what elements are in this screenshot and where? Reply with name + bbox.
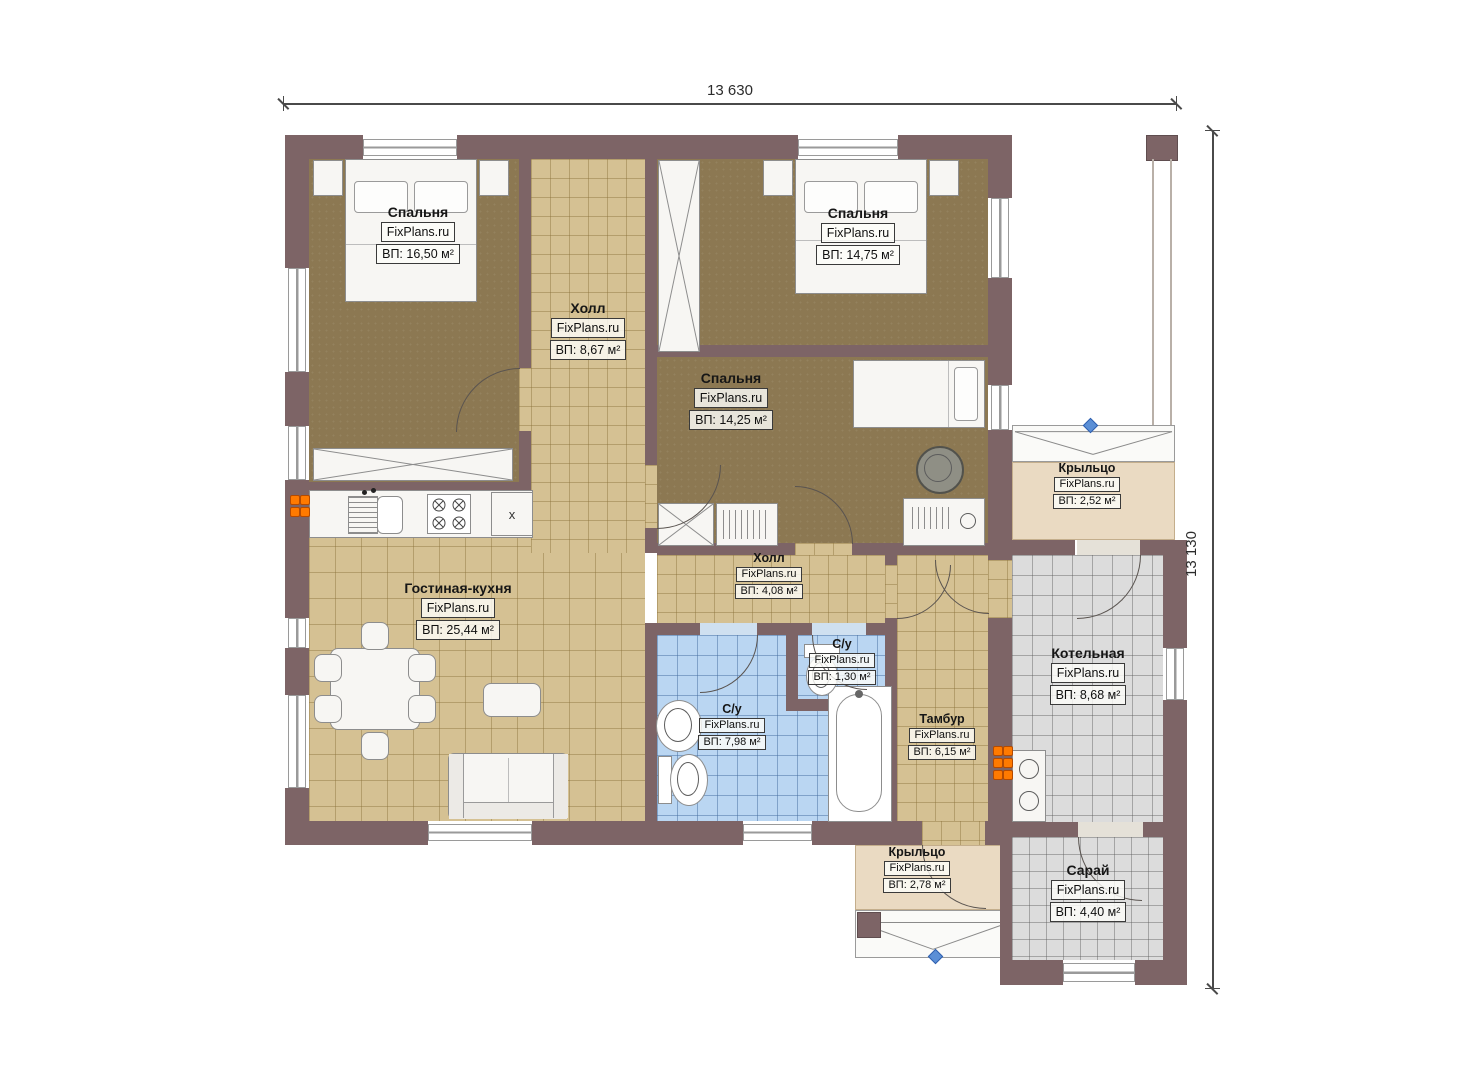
room-label-bedroom-3: Спальня FixPlans.ru ВП: 14,25 м²: [668, 370, 794, 430]
toilet: [670, 754, 708, 806]
door-threshold: [519, 368, 531, 431]
sofa: [448, 753, 568, 819]
door-threshold: [645, 465, 657, 528]
x-cross-icon: [659, 161, 699, 351]
room-area: ВП: 6,15 м²: [908, 745, 975, 760]
window: [363, 139, 457, 156]
chair: [361, 622, 389, 650]
wardrobe: [313, 448, 513, 481]
room-label-hall-1: Холл FixPlans.ru ВП: 8,67 м²: [534, 300, 642, 360]
window: [798, 139, 898, 156]
room-name: Спальня: [701, 370, 761, 386]
door-threshold: [812, 623, 866, 635]
room-label-porch-1: Крыльцо FixPlans.ru ВП: 2,52 м²: [1028, 461, 1146, 509]
wall: [757, 623, 812, 635]
wall: [645, 159, 657, 465]
door-threshold: [700, 623, 757, 635]
dimension-height: 13 130: [1183, 517, 1201, 591]
door-threshold: [922, 821, 985, 845]
room-area: ВП: 8,68 м²: [1050, 685, 1127, 705]
bathtub: [828, 686, 892, 822]
window: [288, 695, 306, 788]
window: [1166, 648, 1184, 700]
coffee-table: [483, 683, 541, 717]
wall: [1143, 822, 1187, 837]
wall: [1163, 700, 1187, 985]
roof-overhang-line: [1170, 159, 1172, 425]
wall: [285, 135, 309, 268]
room-area: ВП: 16,50 м²: [376, 244, 460, 264]
room-area: ВП: 14,25 м²: [689, 410, 773, 430]
wall: [988, 618, 1012, 845]
watermark: FixPlans.ru: [1051, 880, 1126, 900]
dining-table: [330, 648, 420, 730]
boiler-unit: [1012, 750, 1046, 822]
radiator-icon: [290, 495, 308, 517]
wall: [657, 623, 700, 635]
pot-icon: [916, 446, 964, 494]
window: [288, 618, 306, 648]
room-name: Крыльцо: [889, 845, 946, 859]
room-name: Спальня: [828, 205, 888, 221]
wall: [285, 821, 428, 845]
dimension-line-right: [1212, 130, 1214, 988]
kitchen-appliance: x: [491, 492, 533, 536]
faucet-dot: [371, 488, 376, 493]
boiler-dial-icon: [1019, 791, 1039, 811]
nightstand: [479, 160, 509, 196]
window: [288, 426, 306, 480]
room-label-boiler: Котельная FixPlans.ru ВП: 8,68 м²: [1028, 645, 1148, 705]
porch-pillar: [857, 912, 881, 938]
room-label-shed: Сарай FixPlans.ru ВП: 4,40 м²: [1030, 862, 1146, 922]
chair: [314, 654, 342, 682]
radiator-unit: [903, 498, 985, 546]
wall: [786, 623, 798, 711]
wardrobe: [658, 160, 700, 352]
room-name: С/у: [722, 702, 741, 716]
room-label-wc-2: С/у FixPlans.ru ВП: 7,98 м²: [682, 702, 782, 750]
watermark: FixPlans.ru: [809, 653, 874, 668]
floor-plan: x Спальня FixPlan: [0, 0, 1474, 1080]
dresser: [716, 503, 778, 546]
appliance-mark: x: [509, 507, 516, 522]
room-area: ВП: 4,40 м²: [1050, 902, 1127, 922]
kitchen-sink: [377, 496, 403, 534]
wall: [1000, 960, 1063, 985]
burners-icon: [428, 495, 470, 533]
blanket-line: [948, 361, 949, 427]
dimension-width: 13 630: [283, 82, 1177, 99]
door-threshold: [885, 565, 897, 618]
watermark: FixPlans.ru: [381, 222, 456, 242]
window: [991, 385, 1009, 430]
toilet-bowl: [677, 762, 699, 796]
room-label-bedroom-2: Спальня FixPlans.ru ВП: 14,75 м²: [795, 205, 921, 265]
dresser-detail: [723, 510, 771, 539]
room-area: ВП: 2,52 м²: [1053, 494, 1120, 509]
watermark: FixPlans.ru: [884, 861, 949, 876]
room-name: Сарай: [1066, 862, 1109, 878]
room-area: ВП: 14,75 м²: [816, 245, 900, 265]
wall: [519, 159, 531, 368]
room-name: С/у: [832, 637, 851, 651]
wall: [285, 372, 309, 426]
room-name: Холл: [570, 300, 605, 316]
watermark: FixPlans.ru: [421, 598, 496, 618]
door-threshold: [1077, 540, 1140, 555]
wall: [645, 528, 657, 553]
faucet-dot: [362, 490, 367, 495]
radiator-icon: [993, 746, 1011, 780]
room-label-wc-1: С/у FixPlans.ru ВП: 1,30 м²: [800, 637, 884, 685]
room-name: Спальня: [388, 204, 448, 220]
single-bed: [853, 360, 985, 428]
boiler-dial-icon: [1019, 759, 1039, 779]
room-label-bedroom-1: Спальня FixPlans.ru ВП: 16,50 м²: [355, 204, 481, 264]
wall: [657, 345, 988, 357]
wall: [457, 135, 798, 159]
window: [991, 198, 1009, 278]
wall: [1000, 822, 1078, 837]
chair: [314, 695, 342, 723]
porch-pillar: [1146, 135, 1178, 161]
room-label-hall-2: Холл FixPlans.ru ВП: 4,08 м²: [714, 551, 824, 599]
wall: [532, 821, 743, 845]
bathtub-faucet-icon: [855, 690, 863, 698]
wall: [285, 648, 309, 695]
room-name: Тамбур: [919, 712, 964, 726]
door-threshold: [988, 560, 1012, 618]
watermark: FixPlans.ru: [909, 728, 974, 743]
watermark: FixPlans.ru: [1054, 477, 1119, 492]
room-area: ВП: 2,78 м²: [883, 878, 950, 893]
room-area: ВП: 7,98 м²: [698, 735, 765, 750]
chair: [408, 654, 436, 682]
bathtub-basin: [836, 694, 882, 812]
chair: [408, 695, 436, 723]
wall: [1135, 960, 1187, 985]
wall: [1012, 540, 1075, 555]
stove: [427, 494, 471, 534]
sofa-back: [449, 802, 567, 819]
watermark: FixPlans.ru: [1051, 663, 1126, 683]
room-name: Котельная: [1051, 645, 1124, 661]
watermark: FixPlans.ru: [821, 223, 896, 243]
steps-lines-icon: [1013, 426, 1174, 461]
room-label-living: Гостиная-кухня FixPlans.ru ВП: 25,44 м²: [392, 580, 524, 640]
door-threshold: [1078, 822, 1143, 837]
room-area: ВП: 4,08 м²: [735, 584, 802, 599]
wall: [885, 555, 897, 565]
sink-drainboard: [348, 496, 378, 534]
wall: [988, 135, 1012, 198]
roof-overhang-line: [1152, 159, 1154, 425]
nightstand: [763, 160, 793, 196]
porch-1-steps: [1012, 425, 1175, 462]
pillow: [954, 367, 978, 421]
room-label-tambour: Тамбур FixPlans.ru ВП: 6,15 м²: [898, 712, 986, 760]
x-cross-icon: [314, 449, 512, 480]
wall: [812, 821, 922, 845]
wall: [988, 430, 1012, 560]
room-area: ВП: 8,67 м²: [550, 340, 627, 360]
window: [1063, 963, 1135, 982]
window: [428, 824, 532, 841]
radiator-knob-icon: [960, 513, 976, 529]
room-name: Крыльцо: [1059, 461, 1116, 475]
room-area: ВП: 25,44 м²: [416, 620, 500, 640]
room-name: Холл: [753, 551, 784, 565]
nightstand: [313, 160, 343, 196]
wall: [866, 623, 885, 635]
wall: [988, 278, 1012, 385]
sofa-arm: [553, 754, 568, 818]
window: [288, 268, 306, 372]
watermark: FixPlans.ru: [694, 388, 769, 408]
sofa-arm: [449, 754, 464, 818]
watermark: FixPlans.ru: [699, 718, 764, 733]
dimension-line-top: [283, 103, 1177, 105]
sofa-seam: [508, 758, 509, 802]
room-name: Гостиная-кухня: [404, 580, 511, 596]
watermark: FixPlans.ru: [736, 567, 801, 582]
chair: [361, 732, 389, 760]
nightstand: [929, 160, 959, 196]
radiator-detail: [912, 507, 952, 529]
room-area: ВП: 1,30 м²: [808, 670, 875, 685]
window: [743, 824, 812, 841]
room-label-porch-2: Крыльцо FixPlans.ru ВП: 2,78 м²: [858, 845, 976, 893]
pot-rim: [924, 454, 952, 482]
watermark: FixPlans.ru: [551, 318, 626, 338]
